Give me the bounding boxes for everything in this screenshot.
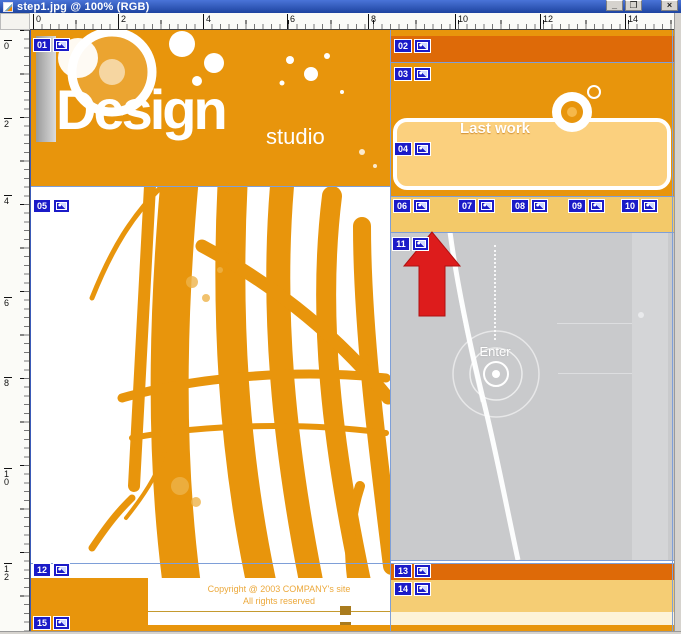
copyright-line2: All rights reserved bbox=[148, 596, 410, 606]
artwork-slice-area bbox=[30, 186, 390, 578]
slice-image-icon bbox=[414, 564, 431, 578]
photoshop-document-window: step1.jpg @ 100% (RGB) _ ❐ × 02468101214… bbox=[0, 0, 681, 634]
ruler-corner[interactable] bbox=[0, 13, 30, 30]
ruler-tick-label: 12 bbox=[4, 563, 12, 581]
slice-image-icon bbox=[414, 67, 431, 81]
ruler-tick-label: 0 bbox=[33, 14, 41, 29]
logo-subtitle: studio bbox=[266, 124, 325, 150]
slice-guide-vertical bbox=[390, 30, 391, 634]
abstract-face-artwork bbox=[30, 186, 390, 578]
slice-badge[interactable]: 03 bbox=[394, 67, 431, 81]
slice-image-icon bbox=[412, 237, 429, 251]
slice-badge[interactable]: 12 bbox=[33, 563, 70, 577]
document-canvas[interactable]: Design studio Last work bbox=[30, 30, 674, 634]
slice-number: 03 bbox=[394, 67, 412, 81]
ruler-tick-label: 6 bbox=[287, 14, 295, 29]
slice-badge[interactable]: 06 bbox=[393, 199, 430, 213]
slice-badge[interactable]: 14 bbox=[394, 582, 431, 596]
ruler-tick-label: 10 bbox=[455, 14, 468, 29]
last-work-panel bbox=[393, 118, 671, 190]
slice-guide-vertical bbox=[672, 30, 673, 634]
slice-image-icon bbox=[414, 39, 431, 53]
document-icon bbox=[3, 2, 13, 12]
slice-badge[interactable]: 10 bbox=[621, 199, 658, 213]
ruler-tick-label: 4 bbox=[203, 14, 211, 29]
slice-image-icon bbox=[478, 199, 495, 213]
slice-number: 07 bbox=[458, 199, 476, 213]
slice-badge[interactable]: 02 bbox=[394, 39, 431, 53]
logo-title: Design bbox=[56, 82, 225, 138]
footer-cream-strip bbox=[390, 612, 674, 625]
slice-guide-horizontal bbox=[390, 560, 674, 561]
top-banner-strip bbox=[390, 36, 674, 62]
slice-image-icon bbox=[641, 199, 658, 213]
slice-guide-horizontal bbox=[390, 62, 674, 63]
slice-number: 08 bbox=[511, 199, 529, 213]
slice-number: 14 bbox=[394, 582, 412, 596]
slice-badge[interactable]: 08 bbox=[511, 199, 548, 213]
slice-guide-horizontal bbox=[30, 563, 674, 564]
slice-number: 12 bbox=[33, 563, 51, 577]
slice-badge[interactable]: 09 bbox=[568, 199, 605, 213]
ruler-tick-label: 14 bbox=[625, 14, 638, 29]
slice-image-icon bbox=[53, 199, 70, 213]
slice-number: 06 bbox=[393, 199, 411, 213]
slice-number: 02 bbox=[394, 39, 412, 53]
last-work-circle-icon bbox=[540, 80, 610, 150]
window-control-button[interactable]: ❐ bbox=[625, 0, 642, 11]
window-right-border bbox=[674, 13, 681, 634]
slice-guide-horizontal bbox=[30, 186, 390, 187]
slice-badge[interactable]: 01 bbox=[33, 38, 70, 52]
ruler-tick-label: 12 bbox=[540, 14, 553, 29]
vertical-ruler[interactable]: 024681012 bbox=[0, 30, 30, 634]
slice-guide-horizontal bbox=[390, 196, 674, 197]
canvas-edge-line bbox=[30, 30, 31, 634]
slice-number: 05 bbox=[33, 199, 51, 213]
slice-number: 11 bbox=[392, 237, 410, 251]
window-controls: _ ❐ × bbox=[604, 0, 681, 13]
footer-tan-strip bbox=[390, 580, 674, 612]
enter-target-graphic[interactable] bbox=[451, 329, 541, 419]
slice-number: 09 bbox=[568, 199, 586, 213]
slice-image-icon bbox=[531, 199, 548, 213]
ruler-tick-label: 10 bbox=[4, 468, 12, 486]
footer-marker-square bbox=[340, 606, 351, 615]
footer-dark-strip bbox=[390, 563, 674, 580]
slice-number: 13 bbox=[394, 564, 412, 578]
slice-image-icon bbox=[588, 199, 605, 213]
slice-image-icon bbox=[414, 142, 431, 156]
slice-image-icon bbox=[53, 616, 70, 630]
ruler-tick-label: 0 bbox=[4, 40, 12, 50]
ruler-tick-label: 8 bbox=[368, 14, 376, 29]
ruler-tick-label: 2 bbox=[4, 118, 12, 128]
slice-badge[interactable]: 15 bbox=[33, 616, 70, 630]
logo-slice-area: Design studio bbox=[30, 30, 390, 186]
slice-number: 15 bbox=[33, 616, 51, 630]
slice-badge[interactable]: 07 bbox=[458, 199, 495, 213]
slice-image-icon bbox=[413, 199, 430, 213]
window-control-button[interactable]: × bbox=[661, 0, 678, 11]
title-bar[interactable]: step1.jpg @ 100% (RGB) _ ❐ × bbox=[0, 0, 681, 13]
slice-number: 10 bbox=[621, 199, 639, 213]
ruler-tick-label: 8 bbox=[4, 377, 12, 387]
slice-badge[interactable]: 13 bbox=[394, 564, 431, 578]
ruler-tick-label: 4 bbox=[4, 195, 12, 205]
slice-badge[interactable]: 05 bbox=[33, 199, 70, 213]
window-control-button[interactable]: _ bbox=[606, 0, 623, 11]
window-title: step1.jpg @ 100% (RGB) bbox=[17, 1, 150, 13]
slice-badge[interactable]: 04 bbox=[394, 142, 431, 156]
copyright-line1: Copyright @ 2003 COMPANY's site bbox=[148, 584, 410, 594]
enter-button-label[interactable]: Enter bbox=[465, 344, 525, 359]
ruler-tick-label: 2 bbox=[118, 14, 126, 29]
slice-badge[interactable]: 11 bbox=[392, 237, 429, 251]
last-work-slice-area: Last work bbox=[390, 30, 674, 196]
slice-number: 04 bbox=[394, 142, 412, 156]
slice-number: 01 bbox=[33, 38, 51, 52]
slice-image-icon bbox=[414, 582, 431, 596]
slice-image-icon bbox=[53, 38, 70, 52]
horizontal-ruler[interactable]: 02468101214 bbox=[30, 13, 681, 30]
ruler-tick-label: 6 bbox=[4, 297, 12, 307]
slice-image-icon bbox=[53, 563, 70, 577]
last-work-label: Last work bbox=[460, 120, 530, 137]
